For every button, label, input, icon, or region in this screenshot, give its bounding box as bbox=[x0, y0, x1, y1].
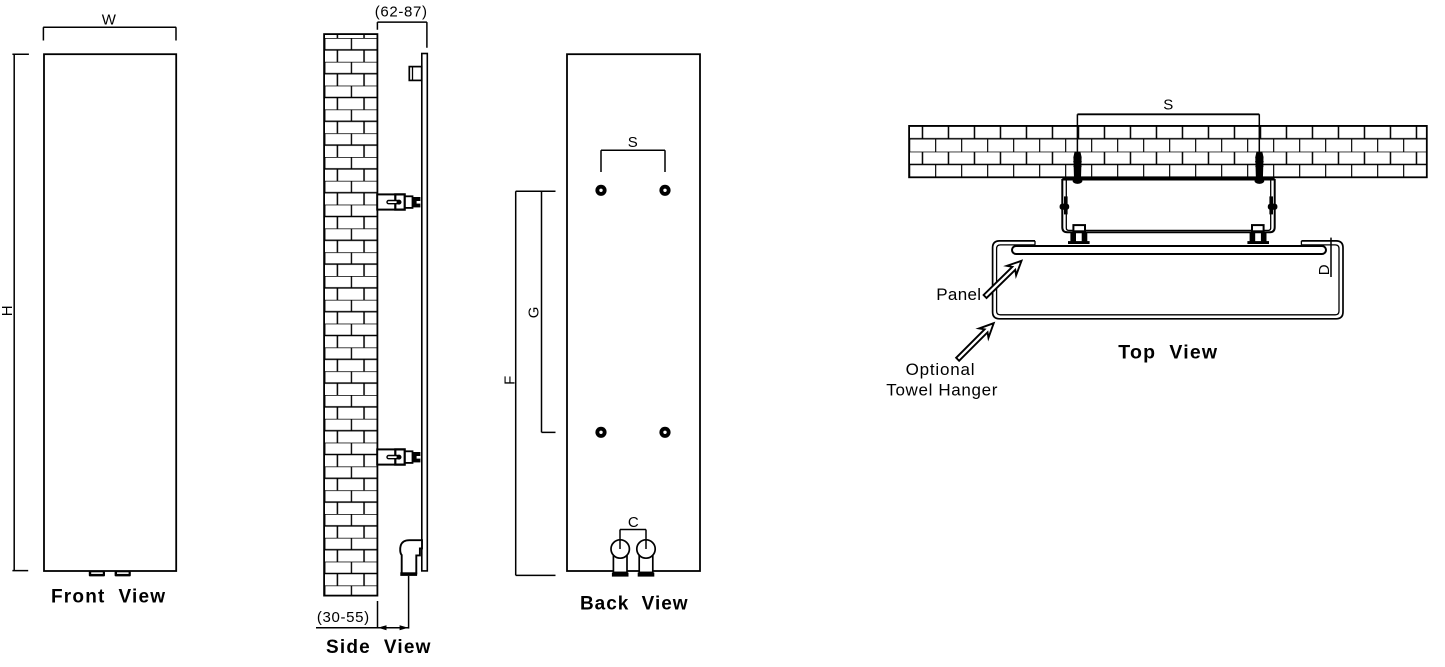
svg-text:C: C bbox=[628, 514, 639, 531]
svg-text:Towel Hanger: Towel Hanger bbox=[886, 381, 998, 400]
svg-text:S: S bbox=[628, 134, 639, 151]
svg-text:Back View: Back View bbox=[580, 594, 688, 615]
svg-text:(30-55): (30-55) bbox=[317, 609, 370, 626]
svg-text:Top View: Top View bbox=[1118, 341, 1218, 363]
svg-text:(62-87): (62-87) bbox=[375, 3, 428, 20]
svg-text:H: H bbox=[0, 305, 16, 316]
svg-text:Optional: Optional bbox=[906, 360, 976, 379]
svg-text:S: S bbox=[1163, 96, 1174, 113]
svg-text:W: W bbox=[102, 12, 117, 29]
svg-text:Front View: Front View bbox=[51, 586, 166, 607]
svg-text:Panel: Panel bbox=[936, 285, 981, 304]
svg-text:G: G bbox=[526, 306, 543, 318]
svg-text:Side View: Side View bbox=[326, 637, 432, 658]
